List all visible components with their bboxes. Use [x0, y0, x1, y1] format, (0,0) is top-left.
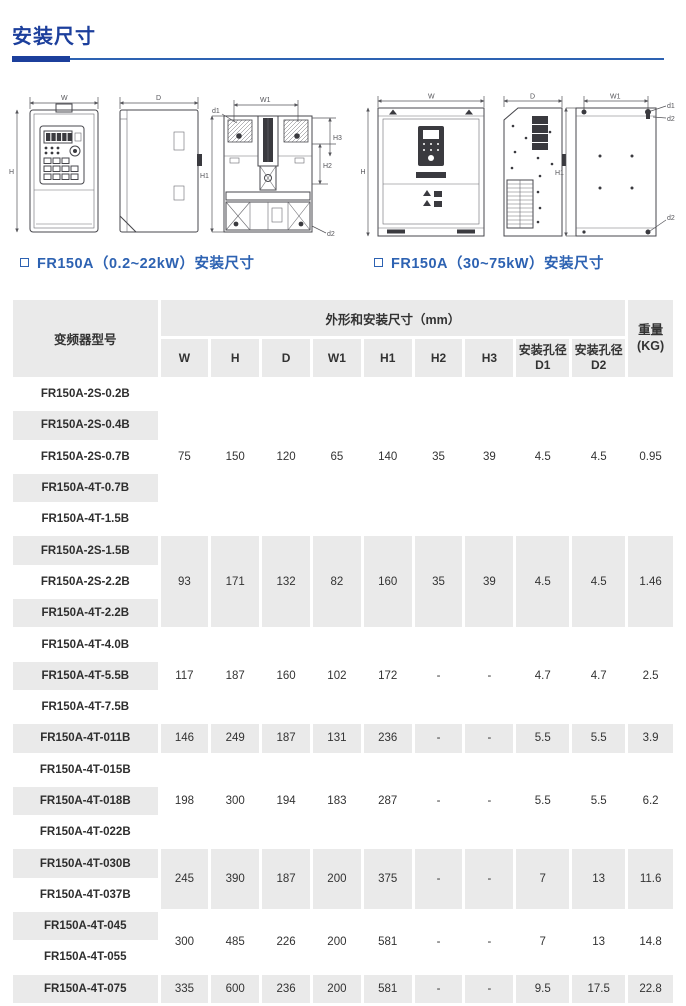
value-cell: 65 — [313, 380, 361, 533]
table-row: FR150A-4T-030B245390187200375--71311.6 — [13, 849, 673, 877]
value-cell: 287 — [364, 756, 412, 847]
header-hole-d1: 安装孔径 D1 — [516, 339, 569, 377]
value-cell: 160 — [262, 630, 310, 721]
model-cell: FR150A-4T-018B — [13, 787, 158, 815]
table-row: FR150A-4T-4.0B117187160102172--4.74.72.5 — [13, 630, 673, 658]
model-cell: FR150A-4T-022B — [13, 818, 158, 846]
header-col-h1: H1 — [364, 339, 412, 377]
model-cell: FR150A-4T-015B — [13, 756, 158, 784]
display-panel-icon — [418, 126, 444, 166]
caption-large-unit-text: FR150A（30~75kW）安装尺寸 — [391, 252, 604, 273]
value-cell: 4.5 — [516, 380, 569, 533]
dim-label-d1: d1 — [667, 103, 675, 110]
value-cell: 600 — [211, 975, 259, 1003]
model-cell: FR150A-4T-4.0B — [13, 630, 158, 658]
dim-label-h1: H1 — [555, 170, 564, 177]
value-cell: 13 — [572, 912, 625, 972]
value-cell: 160 — [364, 536, 412, 627]
small-side-view: D — [120, 95, 202, 232]
value-cell: 335 — [161, 975, 209, 1003]
dim-label-h1: H1 — [200, 173, 209, 180]
dim-label-w1: W1 — [260, 97, 271, 104]
table-header: 变频器型号 外形和安装尺寸（mm） 重量 (KG) W H D W1 H1 H2… — [13, 300, 673, 377]
figure-large-unit: W H — [360, 92, 682, 244]
header-col-d: D — [262, 339, 310, 377]
value-cell: 102 — [313, 630, 361, 721]
value-cell: 5.5 — [572, 724, 625, 752]
model-cell: FR150A-2S-1.5B — [13, 536, 158, 564]
value-cell: 117 — [161, 630, 209, 721]
value-cell: - — [415, 756, 463, 847]
value-cell: 5.5 — [516, 756, 569, 847]
value-cell: 200 — [313, 912, 361, 972]
value-cell: - — [415, 912, 463, 972]
model-cell: FR150A-4T-075 — [13, 975, 158, 1003]
table-row: FR150A-4T-015B198300194183287--5.55.56.2 — [13, 756, 673, 784]
value-cell: 132 — [262, 536, 310, 627]
dim-label-w: W — [61, 95, 68, 102]
value-cell: 3.9 — [628, 724, 673, 752]
model-cell: FR150A-2S-2.2B — [13, 568, 158, 596]
value-cell: - — [415, 975, 463, 1003]
value-cell: 581 — [364, 912, 412, 972]
header-col-h2: H2 — [415, 339, 463, 377]
small-front-view: W H — [9, 95, 98, 232]
table-row: FR150A-4T-075335600236200581--9.517.522.… — [13, 975, 673, 1003]
small-rear-view: W1 d1 — [200, 97, 342, 238]
value-cell: 5.5 — [572, 756, 625, 847]
header-col-w: W — [161, 339, 209, 377]
table-row: FR150A-4T-045300485226200581--71314.8 — [13, 912, 673, 940]
value-cell: 2.5 — [628, 630, 673, 721]
caption-row: FR150A（0.2~22kW）安装尺寸 FR150A（30~75kW）安装尺寸 — [0, 244, 686, 273]
model-cell: FR150A-4T-055 — [13, 943, 158, 971]
dim-label-h3: H3 — [333, 135, 342, 142]
vent-grille-icon — [507, 180, 533, 228]
value-cell: - — [415, 724, 463, 752]
model-cell: FR150A-4T-7.5B — [13, 693, 158, 721]
value-cell: - — [465, 756, 513, 847]
value-cell: 249 — [211, 724, 259, 752]
value-cell: 9.5 — [516, 975, 569, 1003]
value-cell: 11.6 — [628, 849, 673, 909]
table-row: FR150A-2S-1.5B931711328216035394.54.51.4… — [13, 536, 673, 564]
model-cell: FR150A-4T-0.7B — [13, 474, 158, 502]
value-cell: 485 — [211, 912, 259, 972]
value-cell: 75 — [161, 380, 209, 533]
value-cell: 187 — [211, 630, 259, 721]
value-cell: 581 — [364, 975, 412, 1003]
model-cell: FR150A-4T-037B — [13, 881, 158, 909]
value-cell: 131 — [313, 724, 361, 752]
model-cell: FR150A-4T-1.5B — [13, 505, 158, 533]
model-cell: FR150A-4T-011B — [13, 724, 158, 752]
caption-large-unit: FR150A（30~75kW）安装尺寸 — [360, 252, 682, 273]
dim-label-w: W — [428, 94, 435, 101]
brand-bar — [416, 172, 446, 178]
value-cell: 140 — [364, 380, 412, 533]
header-hole-d2: 安装孔径 D2 — [572, 339, 625, 377]
header-col-h: H — [211, 339, 259, 377]
value-cell: 120 — [262, 380, 310, 533]
model-cell: FR150A-2S-0.4B — [13, 411, 158, 439]
large-side-view: D — [504, 94, 566, 237]
value-cell: 22.8 — [628, 975, 673, 1003]
value-cell: 39 — [465, 536, 513, 627]
value-cell: 187 — [262, 724, 310, 752]
value-cell: 183 — [313, 756, 361, 847]
dim-label-d: D — [156, 95, 161, 102]
value-cell: 14.8 — [628, 912, 673, 972]
model-cell: FR150A-2S-0.7B — [13, 443, 158, 471]
value-cell: 35 — [415, 380, 463, 533]
value-cell: 300 — [161, 912, 209, 972]
header-dims-group: 外形和安装尺寸（mm） — [161, 300, 626, 336]
dim-label-d: D — [530, 94, 535, 101]
model-cell: FR150A-4T-2.2B — [13, 599, 158, 627]
dim-label-d2: d2 — [327, 231, 335, 238]
value-cell: 6.2 — [628, 756, 673, 847]
value-cell: 17.5 — [572, 975, 625, 1003]
value-cell: 171 — [211, 536, 259, 627]
value-cell: 4.7 — [572, 630, 625, 721]
value-cell: 236 — [364, 724, 412, 752]
value-cell: 375 — [364, 849, 412, 909]
dim-label-w1: W1 — [610, 94, 621, 101]
value-cell: 1.46 — [628, 536, 673, 627]
caption-bullet-icon — [374, 258, 383, 267]
value-cell: 187 — [262, 849, 310, 909]
value-cell: 300 — [211, 756, 259, 847]
dim-label-h2: H2 — [323, 163, 332, 170]
value-cell: 198 — [161, 756, 209, 847]
value-cell: 245 — [161, 849, 209, 909]
model-cell: FR150A-4T-030B — [13, 849, 158, 877]
dim-label-h: H — [9, 169, 14, 176]
figure-row: W H — [0, 62, 686, 244]
header-col-w1: W1 — [313, 339, 361, 377]
caption-small-unit: FR150A（0.2~22kW）安装尺寸 — [6, 252, 346, 273]
value-cell: 13 — [572, 849, 625, 909]
value-cell: 172 — [364, 630, 412, 721]
value-cell: - — [415, 630, 463, 721]
dimension-table: 变频器型号 外形和安装尺寸（mm） 重量 (KG) W H D W1 H1 H2… — [10, 297, 676, 1006]
heading-rule — [12, 56, 674, 62]
table-row: FR150A-2S-0.2B751501206514035394.54.50.9… — [13, 380, 673, 408]
page-header: 安装尺寸 — [0, 0, 686, 62]
model-cell: FR150A-4T-045 — [13, 912, 158, 940]
header-model: 变频器型号 — [13, 300, 158, 377]
value-cell: 390 — [211, 849, 259, 909]
dimension-table-wrap: 变频器型号 外形和安装尺寸（mm） 重量 (KG) W H D W1 H1 H2… — [0, 273, 686, 1006]
dim-label-d2-bottom: d2 — [667, 215, 675, 222]
caption-bullet-icon — [20, 258, 29, 267]
value-cell: 4.5 — [572, 536, 625, 627]
large-rear-view: W1 H1 d1 d2 d2 — [555, 94, 675, 237]
dim-label-d1: d1 — [212, 108, 220, 115]
value-cell: - — [465, 849, 513, 909]
value-cell: - — [465, 724, 513, 752]
value-cell: 4.5 — [516, 536, 569, 627]
value-cell: 35 — [415, 536, 463, 627]
value-cell: 200 — [313, 849, 361, 909]
dim-label-d2: d2 — [667, 116, 675, 123]
value-cell: - — [465, 630, 513, 721]
large-front-view: W H — [361, 94, 485, 237]
large-unit-drawing: W H — [360, 92, 682, 244]
caption-small-unit-text: FR150A（0.2~22kW）安装尺寸 — [37, 252, 255, 273]
warning-labels-icon — [423, 190, 442, 207]
figure-small-unit: W H — [6, 92, 346, 244]
value-cell: 93 — [161, 536, 209, 627]
value-cell: 0.95 — [628, 380, 673, 533]
keypad-icon — [40, 126, 84, 184]
value-cell: 146 — [161, 724, 209, 752]
model-cell: FR150A-2S-0.2B — [13, 380, 158, 408]
value-cell: 4.5 — [572, 380, 625, 533]
page-title: 安装尺寸 — [12, 20, 674, 49]
value-cell: 200 — [313, 975, 361, 1003]
header-weight: 重量 (KG) — [628, 300, 673, 377]
value-cell: 226 — [262, 912, 310, 972]
value-cell: 7 — [516, 912, 569, 972]
model-cell: FR150A-4T-5.5B — [13, 662, 158, 690]
small-unit-drawing: W H — [6, 92, 346, 244]
value-cell: 194 — [262, 756, 310, 847]
table-row: FR150A-4T-011B146249187131236--5.55.53.9 — [13, 724, 673, 752]
value-cell: 39 — [465, 380, 513, 533]
header-col-h3: H3 — [465, 339, 513, 377]
dimension-table-body: FR150A-2S-0.2B751501206514035394.54.50.9… — [13, 380, 673, 1003]
value-cell: 82 — [313, 536, 361, 627]
dim-label-h: H — [361, 169, 366, 176]
value-cell: 7 — [516, 849, 569, 909]
value-cell: 4.7 — [516, 630, 569, 721]
value-cell: - — [465, 975, 513, 1003]
value-cell: - — [465, 912, 513, 972]
value-cell: 5.5 — [516, 724, 569, 752]
value-cell: - — [415, 849, 463, 909]
value-cell: 150 — [211, 380, 259, 533]
value-cell: 236 — [262, 975, 310, 1003]
